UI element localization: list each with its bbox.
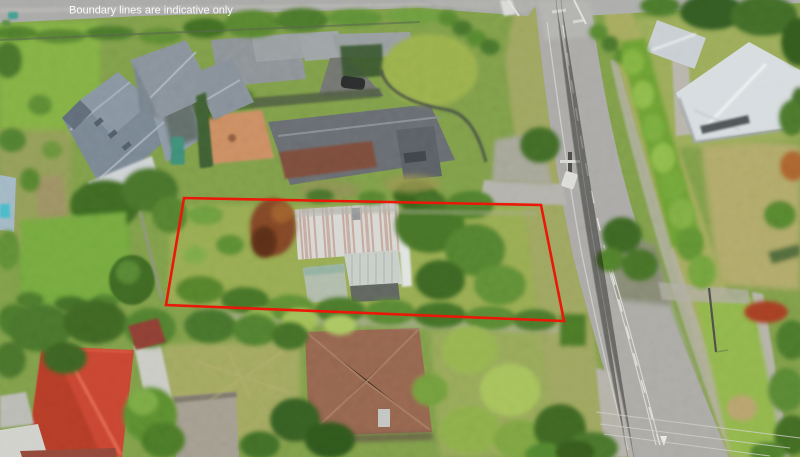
svg-text:Boundary lines are indicative: Boundary lines are indicative only bbox=[69, 5, 233, 17]
